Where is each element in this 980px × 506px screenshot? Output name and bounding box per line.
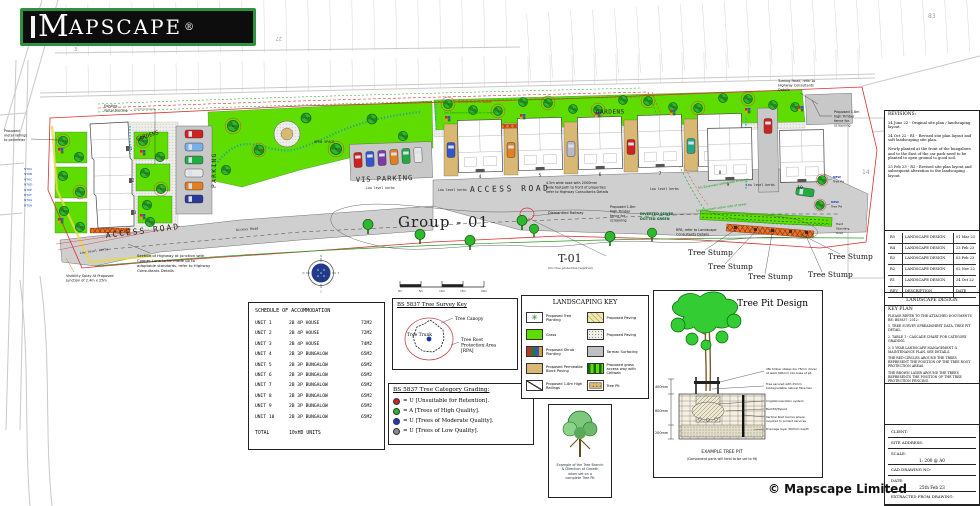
compass-e: E xyxy=(338,271,340,275)
type-cell: 2B 3P BUNGALOW xyxy=(289,350,361,360)
house-10 xyxy=(780,130,825,183)
group-01-label: Group - 01 xyxy=(398,213,489,231)
svg-text:Visibility Splay At Proposed: Visibility Splay At Proposed xyxy=(66,274,113,278)
svg-text:biodegradable natural fibre ti: biodegradable natural fibre ties xyxy=(766,386,812,390)
blue-dot-icon xyxy=(393,418,400,425)
unit-cell: UNIT 5 xyxy=(255,361,289,371)
svg-text:Area: Area xyxy=(836,231,843,235)
house-9 xyxy=(708,128,753,181)
key-item: Proposed Shrub Planting xyxy=(526,343,584,360)
key-item: Proposed Paving xyxy=(587,326,645,343)
t01-note: (No tree protection required) xyxy=(548,266,593,270)
key-label: Proposed Paving xyxy=(607,316,637,320)
grading-label: = U [Trees of Moderate Quality]. xyxy=(403,416,493,426)
svg-text:Tree Stump: Tree Stump xyxy=(688,248,733,257)
svg-text:to perimeter: to perimeter xyxy=(4,138,26,142)
total-value: 10xHD UNITS xyxy=(289,431,385,436)
area-cell: 72M2 xyxy=(361,319,385,329)
revision-note: 24 June 22 - Original site plan / landsc… xyxy=(888,121,976,130)
revision-note: 24 Oct 22 - R1 - Revised site plan layou… xyxy=(888,134,976,143)
svg-text:wide footpath to front of prop: wide footpath to front of properties xyxy=(546,186,606,190)
type-cell: 2B 3P BUNGALOW xyxy=(289,413,361,423)
area-cell: 65M2 xyxy=(361,402,385,412)
area-cell: 65M2 xyxy=(361,361,385,371)
tree-pit-swatch-icon xyxy=(587,380,604,391)
mapscape-logo: MAPSCAPE® xyxy=(20,8,256,46)
compass-w: W xyxy=(302,271,305,275)
dim-label: 400mm xyxy=(655,385,669,389)
svg-text:Drainage layer 300mm depth: Drainage layer 300mm depth xyxy=(766,427,809,431)
rpa-label: Tree Root xyxy=(461,338,483,343)
t01-label: T-01 xyxy=(558,252,582,265)
unit-cell: UNIT 4 xyxy=(255,350,289,360)
schedule-of-accommodation: SCHEDULE OF ACCOMMODATION UNIT 12B 4P HO… xyxy=(248,302,385,450)
diverted-sewer-note: DIVERTED SEWER DOTTED GREEN xyxy=(640,212,674,221)
svg-text:screening: screening xyxy=(610,219,627,223)
logo-bar-icon xyxy=(31,16,35,38)
area-cell: 65M2 xyxy=(361,350,385,360)
svg-text:NEW: NEW xyxy=(831,200,840,204)
svg-text:10: 10 xyxy=(797,185,803,191)
svg-text:required to protect services: required to protect services xyxy=(766,419,806,423)
svg-text:DIVERTED SEWER: DIVERTED SEWER xyxy=(640,212,674,216)
table-row: R1LANDSCAPE DESIGN24 Oct 22 xyxy=(888,276,976,287)
trunk-label: Tree Trunk xyxy=(407,333,432,338)
area-cell: 72M2 xyxy=(361,329,385,339)
unit-cell: UNIT 9 xyxy=(255,402,289,412)
table-row: UNIT 62B 3P BUNGALOW65M2 xyxy=(255,371,380,381)
key-item: Tree Pit xyxy=(587,377,645,394)
svg-text:8: 8 xyxy=(719,170,722,176)
house-7 xyxy=(637,114,682,167)
plot-number: 83 xyxy=(928,13,936,20)
grading-item: = U [Trees of Moderate Quality]. xyxy=(393,416,529,426)
scale-tick: 10m xyxy=(439,289,445,293)
scale-tick: 20m xyxy=(481,289,487,293)
sewer-easement-label: 5m Easement either side of sewer xyxy=(444,111,496,115)
svg-text:Tree Stump: Tree Stump xyxy=(748,272,793,281)
table-row: UNIT 42B 3P BUNGALOW65M2 xyxy=(255,350,380,360)
key-item: ✳Proposed Tree Planting xyxy=(526,309,584,326)
scale-field: SCALE:1: 200 @ A0 xyxy=(888,449,976,465)
svg-text:high Timber: high Timber xyxy=(610,210,631,214)
grading-label: = U [Unsuitable for Retention]. xyxy=(403,396,489,406)
svg-text:Consultants Details: Consultants Details xyxy=(137,268,174,273)
tree-example-box: Example of the Tree Branch & Direction o… xyxy=(548,404,612,498)
schedule-title: SCHEDULE OF ACCOMMODATION xyxy=(255,308,380,314)
house-5 xyxy=(517,117,562,170)
key-plan-note: PLEASE REFER TO THE ATTACHED DOCUMENTS R… xyxy=(888,314,976,322)
tarmac-swatch-icon xyxy=(587,346,604,357)
key-label: Proposed Permeable Block Paving xyxy=(546,365,584,373)
table-row: UNIT 22B 4P HOUSE72M2 xyxy=(255,329,380,339)
scale-tick: 5m xyxy=(419,289,424,293)
unit-cell: UNIT 10 xyxy=(255,413,289,423)
svg-text:Highway Consultants: Highway Consultants xyxy=(778,84,814,88)
tree-pit-diagram: 400mm 600mm 200mm 2№ timber stakes dia 7… xyxy=(654,291,822,477)
paving-stipple-swatch-icon xyxy=(587,329,604,340)
shrub-planting-swatch-icon xyxy=(526,346,543,357)
table-row: R2LANDSCAPE DESIGN02 Nov 22 xyxy=(888,265,976,276)
revision-table: R5LANDSCAPE DESIGN01 Mar 23 R4LANDSCAPE … xyxy=(885,231,979,293)
area-cell: 65M2 xyxy=(361,371,385,381)
svg-text:Low level kerbs: Low level kerbs xyxy=(650,187,679,191)
svg-text:metal fencing: metal fencing xyxy=(104,109,127,113)
client-field: CLIENT: xyxy=(888,427,976,438)
svg-text:NT6A: NT6A xyxy=(24,167,33,171)
svg-text:4.5m wide road with 2000mm: 4.5m wide road with 2000mm xyxy=(546,181,598,185)
key-label: Grass xyxy=(546,333,556,337)
unit-cell: UNIT 1 xyxy=(255,319,289,329)
svg-text:fence for: fence for xyxy=(610,214,626,218)
tree-example-caption: Example of the Tree Branch & Direction o… xyxy=(551,463,609,481)
svg-text:4: 4 xyxy=(479,174,482,180)
svg-text:Tree Stump: Tree Stump xyxy=(828,252,873,261)
grading-item: = U [Unsuitable for Retention]. xyxy=(393,396,529,406)
copyright-notice: © Mapscape Limited xyxy=(768,482,907,496)
svg-text:refer to Highway Consultants D: refer to Highway Consultants Details xyxy=(546,190,609,194)
key-label: Proposed grass access way with Cellweb xyxy=(607,363,645,375)
svg-text:Proposed 1.8m: Proposed 1.8m xyxy=(834,110,860,114)
pit-caption: EXAMPLE TREE PIT xyxy=(701,449,742,455)
grading-item: = U [Trees of Low Quality]. xyxy=(393,426,529,436)
svg-text:NT6H: NT6H xyxy=(24,203,32,207)
pit-section xyxy=(679,394,765,439)
svg-text:Proposed: Proposed xyxy=(4,129,20,133)
unit-cell: UNIT 2 xyxy=(255,329,289,339)
gardens-label-right: GARDENS xyxy=(596,108,625,116)
north-compass-icon: N E S W xyxy=(302,254,339,294)
svg-text:Tree Stump: Tree Stump xyxy=(708,262,753,271)
table-row: UNIT 72B 3P BUNGALOW65M2 xyxy=(255,381,380,391)
svg-text:7: 7 xyxy=(659,171,662,177)
landscaping-key-title: LANDSCAPING KEY xyxy=(526,299,644,306)
house-4 xyxy=(457,119,502,172)
key-label: Proposed Paving xyxy=(607,333,637,337)
type-cell: 2B 3P BUNGALOW xyxy=(289,371,361,381)
svg-text:Standing: Standing xyxy=(836,226,849,230)
grading-label: = U [Trees of Low Quality]. xyxy=(403,426,478,436)
table-row: UNIT 82B 3P BUNGALOW65M2 xyxy=(255,392,380,402)
example-tree-icon xyxy=(552,407,608,459)
svg-text:fence for: fence for xyxy=(834,119,850,123)
plot-number: 3 xyxy=(74,47,77,53)
logo-first-letter: M xyxy=(38,12,69,42)
key-plan-note: THE BROWN LAYER AROUND THE TREES REPRESE… xyxy=(888,371,976,383)
svg-text:Backfill/Topsoil: Backfill/Topsoil xyxy=(766,407,787,411)
svg-text:Low level kerbs: Low level kerbs xyxy=(746,183,775,187)
rpa-label: Protection Area xyxy=(461,344,496,349)
table-row: UNIT 32B 4P HOUSE74M2 xyxy=(255,340,380,350)
type-cell: 2B 3P BUNGALOW xyxy=(289,361,361,371)
svg-text:Tree Stump: Tree Stump xyxy=(808,270,853,279)
key-label: Proposed 1.8m High Railings xyxy=(546,382,584,390)
key-plan-box xyxy=(885,384,979,425)
parking-label: PARKING xyxy=(211,152,218,188)
pit-dimensions: 400mm 600mm 200mm xyxy=(655,379,674,439)
gray-dot-icon xyxy=(393,428,400,435)
key-item: Proposed Paving xyxy=(587,309,645,326)
tree-pit-tree xyxy=(671,292,741,391)
landscape-design-bar: LANDSCAPE DESIGN xyxy=(885,293,979,306)
pit-subcaption: (Component parts will tend to be set to … xyxy=(687,457,758,461)
svg-text:1: 1 xyxy=(130,146,133,152)
tree-pit-title: Tree Pit Design xyxy=(737,299,808,309)
table-row: R3LANDSCAPE DESIGN03 Feb 23 xyxy=(888,254,976,265)
grading-label: = A [Trees of High Quality]. xyxy=(403,406,480,416)
compass-n: N xyxy=(320,254,322,258)
key-plan-note: 2. TABLE 1 - CASCADE CHART FOR CATEGORY … xyxy=(888,335,976,343)
block-paving-swatch-icon xyxy=(526,363,543,374)
key-plan-note: 1. TREE SURVEY SPREADSHEET DATA, TREE PI… xyxy=(888,324,976,332)
registered-mark: ® xyxy=(184,22,194,33)
svg-text:6: 6 xyxy=(599,172,602,178)
key-plan-section: KEY PLAN PLEASE REFER TO THE ATTACHED DO… xyxy=(885,306,979,384)
tree-planting-swatch-icon: ✳ xyxy=(526,312,543,323)
canopy-label: Tree Canopy xyxy=(455,317,484,322)
tree-tags: NT6A NT6B NT6C NT6D NT6E NT6F NT6G NT6H xyxy=(24,167,33,207)
paving-hatch-swatch-icon xyxy=(587,312,604,323)
survey-key-diagram: Tree Canopy Tree Trunk Tree Root Protect… xyxy=(397,309,513,365)
svg-text:Hard: Hard xyxy=(836,222,843,226)
svg-text:Low level kerbs: Low level kerbs xyxy=(438,188,467,192)
green-dot-icon xyxy=(393,408,400,415)
scale-tick: 15m xyxy=(460,289,466,293)
key-item: Tarmac Surfacing xyxy=(587,343,645,360)
key-label: Proposed Shrub Planting xyxy=(546,348,584,356)
total-label: TOTAL xyxy=(255,431,289,436)
svg-text:Proposed 1.8m: Proposed 1.8m xyxy=(610,205,636,209)
cad-no-field: CAD DRAWING NO: xyxy=(888,465,976,476)
dismantled-railway-label: Dismantled Railway xyxy=(548,211,584,215)
revision-note: Newly planted at the front of the bungal… xyxy=(888,147,976,161)
sewer-centre-label: Centre Line Of Sewer xyxy=(458,100,493,104)
key-item: Proposed Permeable Block Paving xyxy=(526,360,584,377)
unit-cell: UNIT 6 xyxy=(255,371,289,381)
key-plan-note: 3. 5 YEAR LANDSCAPE MANAGEMENT & MAINTEN… xyxy=(888,346,976,354)
svg-text:high Timber: high Timber xyxy=(834,115,855,119)
svg-text:Consultants Details: Consultants Details xyxy=(676,233,709,237)
dim-label: 200mm xyxy=(655,431,669,435)
revisions-title: REVISIONS: xyxy=(888,113,976,118)
unit-cell: UNIT 7 xyxy=(255,381,289,391)
compass-s: S xyxy=(320,290,322,294)
open-space-label: OPEN SPACE xyxy=(314,140,334,144)
key-plan-note: THE RED CIRCLES AROUND THE TREES REPRESE… xyxy=(888,356,976,368)
area-cell: 65M2 xyxy=(361,392,385,402)
type-cell: 2B 4P HOUSE xyxy=(289,329,361,339)
svg-text:Tree Pit: Tree Pit xyxy=(830,204,843,208)
red-dot-icon xyxy=(393,398,400,405)
table-row: UNIT 52B 3P BUNGALOW65M2 xyxy=(255,361,380,371)
tree-category-grading: BS 5837 Tree Category Grading: = U [Unsu… xyxy=(388,383,534,445)
grading-title: BS 5837 Tree Category Grading: xyxy=(393,387,529,393)
scale-tick: 0m xyxy=(398,289,403,293)
svg-text:RPA, refer to Landscape: RPA, refer to Landscape xyxy=(676,228,717,232)
table-row: UNIT 12B 4P HOUSE72M2 xyxy=(255,319,380,329)
logo-text: APSCAPE xyxy=(69,17,182,37)
type-cell: 2B 4P HOUSE xyxy=(289,319,361,329)
svg-text:NT6G: NT6G xyxy=(24,198,33,202)
table-row: R4LANDSCAPE DESIGN23 Feb 23 xyxy=(888,244,976,255)
key-label: Proposed Tree Planting xyxy=(546,314,584,322)
key-item: Proposed grass access way with Cellweb xyxy=(587,360,645,377)
svg-text:Details: Details xyxy=(778,88,790,92)
type-cell: 2B 3P BUNGALOW xyxy=(289,392,361,402)
title-block: REVISIONS: 24 June 22 - Original site pl… xyxy=(884,110,980,506)
type-cell: 2B 3P BUNGALOW xyxy=(289,381,361,391)
svg-text:screening: screening xyxy=(834,124,851,128)
revisions-section: REVISIONS: 24 June 22 - Original site pl… xyxy=(885,111,979,231)
tree-pit-design-panel: Tree Pit Design xyxy=(653,290,823,478)
svg-text:Tree Pit: Tree Pit xyxy=(832,179,845,183)
svg-text:NT6D: NT6D xyxy=(24,183,33,187)
table-row: UNIT 92B 3P BUNGALOW65M2 xyxy=(255,402,380,412)
svg-text:NEW: NEW xyxy=(833,175,842,179)
svg-text:at least 300mm into base of pi: at least 300mm into base of pit xyxy=(766,371,812,375)
grading-item: = A [Trees of High Quality]. xyxy=(393,406,529,416)
rpa-label: [RPA] xyxy=(461,349,474,354)
area-cell: 65M2 xyxy=(361,381,385,391)
survey-key-title: BS 5837 Tree Survey Key xyxy=(397,302,513,308)
tree-survey-key: BS 5837 Tree Survey Key Tree Canopy Tree… xyxy=(392,298,518,370)
area-cell: 74M2 xyxy=(361,340,385,350)
dim-label: 600mm xyxy=(655,409,669,413)
type-cell: 2B 4P HOUSE xyxy=(289,340,361,350)
drawing-sheet: 3 15 27 83 14 xyxy=(0,0,980,506)
scale-bar: 0m 5m 10m 15m 20m xyxy=(398,281,487,293)
svg-text:NT6B: NT6B xyxy=(24,172,32,176)
svg-text:Low level kerbs: Low level kerbs xyxy=(366,186,395,190)
house-6 xyxy=(577,116,622,169)
plot-number: 27 xyxy=(276,35,282,41)
key-plan-title: KEY PLAN xyxy=(888,308,976,312)
type-cell: 2B 3P BUNGALOW xyxy=(289,402,361,412)
svg-text:NT6F: NT6F xyxy=(24,193,32,197)
svg-text:Junction of 2.4m x 25m: Junction of 2.4m x 25m xyxy=(65,279,107,283)
svg-text:5: 5 xyxy=(539,173,542,179)
unit-cell: UNIT 3 xyxy=(255,340,289,350)
svg-text:3: 3 xyxy=(134,210,137,216)
key-label: Tarmac Surfacing xyxy=(607,350,638,354)
key-item: Proposed 1.8m High Railings xyxy=(526,377,584,394)
schedule-total: TOTAL 10xHD UNITS xyxy=(255,431,380,436)
unit-cell: UNIT 8 xyxy=(255,392,289,402)
table-row: R5LANDSCAPE DESIGN01 Mar 23 xyxy=(888,233,976,244)
grass-swatch-icon xyxy=(526,329,543,340)
svg-text:NT6E: NT6E xyxy=(24,188,32,192)
svg-text:DOTTED GREEN: DOTTED GREEN xyxy=(640,217,670,221)
cellweb-swatch-icon xyxy=(587,363,604,374)
plot-number: 14 xyxy=(862,169,870,176)
key-item: Grass xyxy=(526,326,584,343)
vis-parking-label: VIS PARKING xyxy=(356,174,414,184)
access-road-label-mid: ACCESS ROAD xyxy=(470,184,551,194)
key-label: Tree Pit xyxy=(607,384,620,388)
svg-text:Irrigation/aeration system: Irrigation/aeration system xyxy=(766,399,804,403)
revision-note: 23 Feb 23 - R2 - Revised site plan layou… xyxy=(888,165,976,179)
svg-text:Existing: Existing xyxy=(104,104,117,108)
svg-text:NT6C: NT6C xyxy=(24,177,32,181)
landscaping-key: LANDSCAPING KEY ✳Proposed Tree Planting … xyxy=(521,295,649,399)
railings-swatch-icon xyxy=(526,380,543,391)
area-cell: 65M2 xyxy=(361,413,385,423)
svg-text:2: 2 xyxy=(132,178,135,184)
svg-text:metal railings: metal railings xyxy=(4,134,27,138)
table-row: UNIT 102B 3P BUNGALOW65M2 xyxy=(255,413,380,423)
site-address-field: SITE ADDRESS: xyxy=(888,438,976,449)
svg-text:Turning Head, refer to: Turning Head, refer to xyxy=(777,79,815,83)
